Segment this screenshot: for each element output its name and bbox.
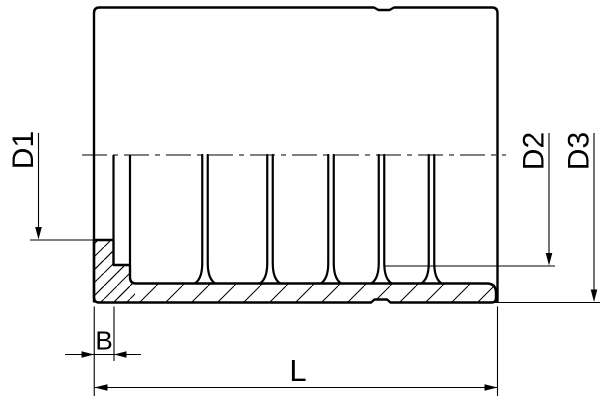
dimension-d2-label: D2 bbox=[518, 132, 551, 170]
dimension-d1-label: D1 bbox=[7, 131, 40, 169]
ferrule-drawing-canvas: D1 D2 D3 B L bbox=[0, 0, 600, 400]
dimension-d3-label: D3 bbox=[563, 132, 596, 170]
drawing-background bbox=[0, 0, 600, 400]
dimension-l-label: L bbox=[289, 353, 306, 388]
ferrule-technical-drawing: D1 D2 D3 B L bbox=[0, 0, 600, 400]
dimension-b-label: B bbox=[95, 326, 112, 356]
